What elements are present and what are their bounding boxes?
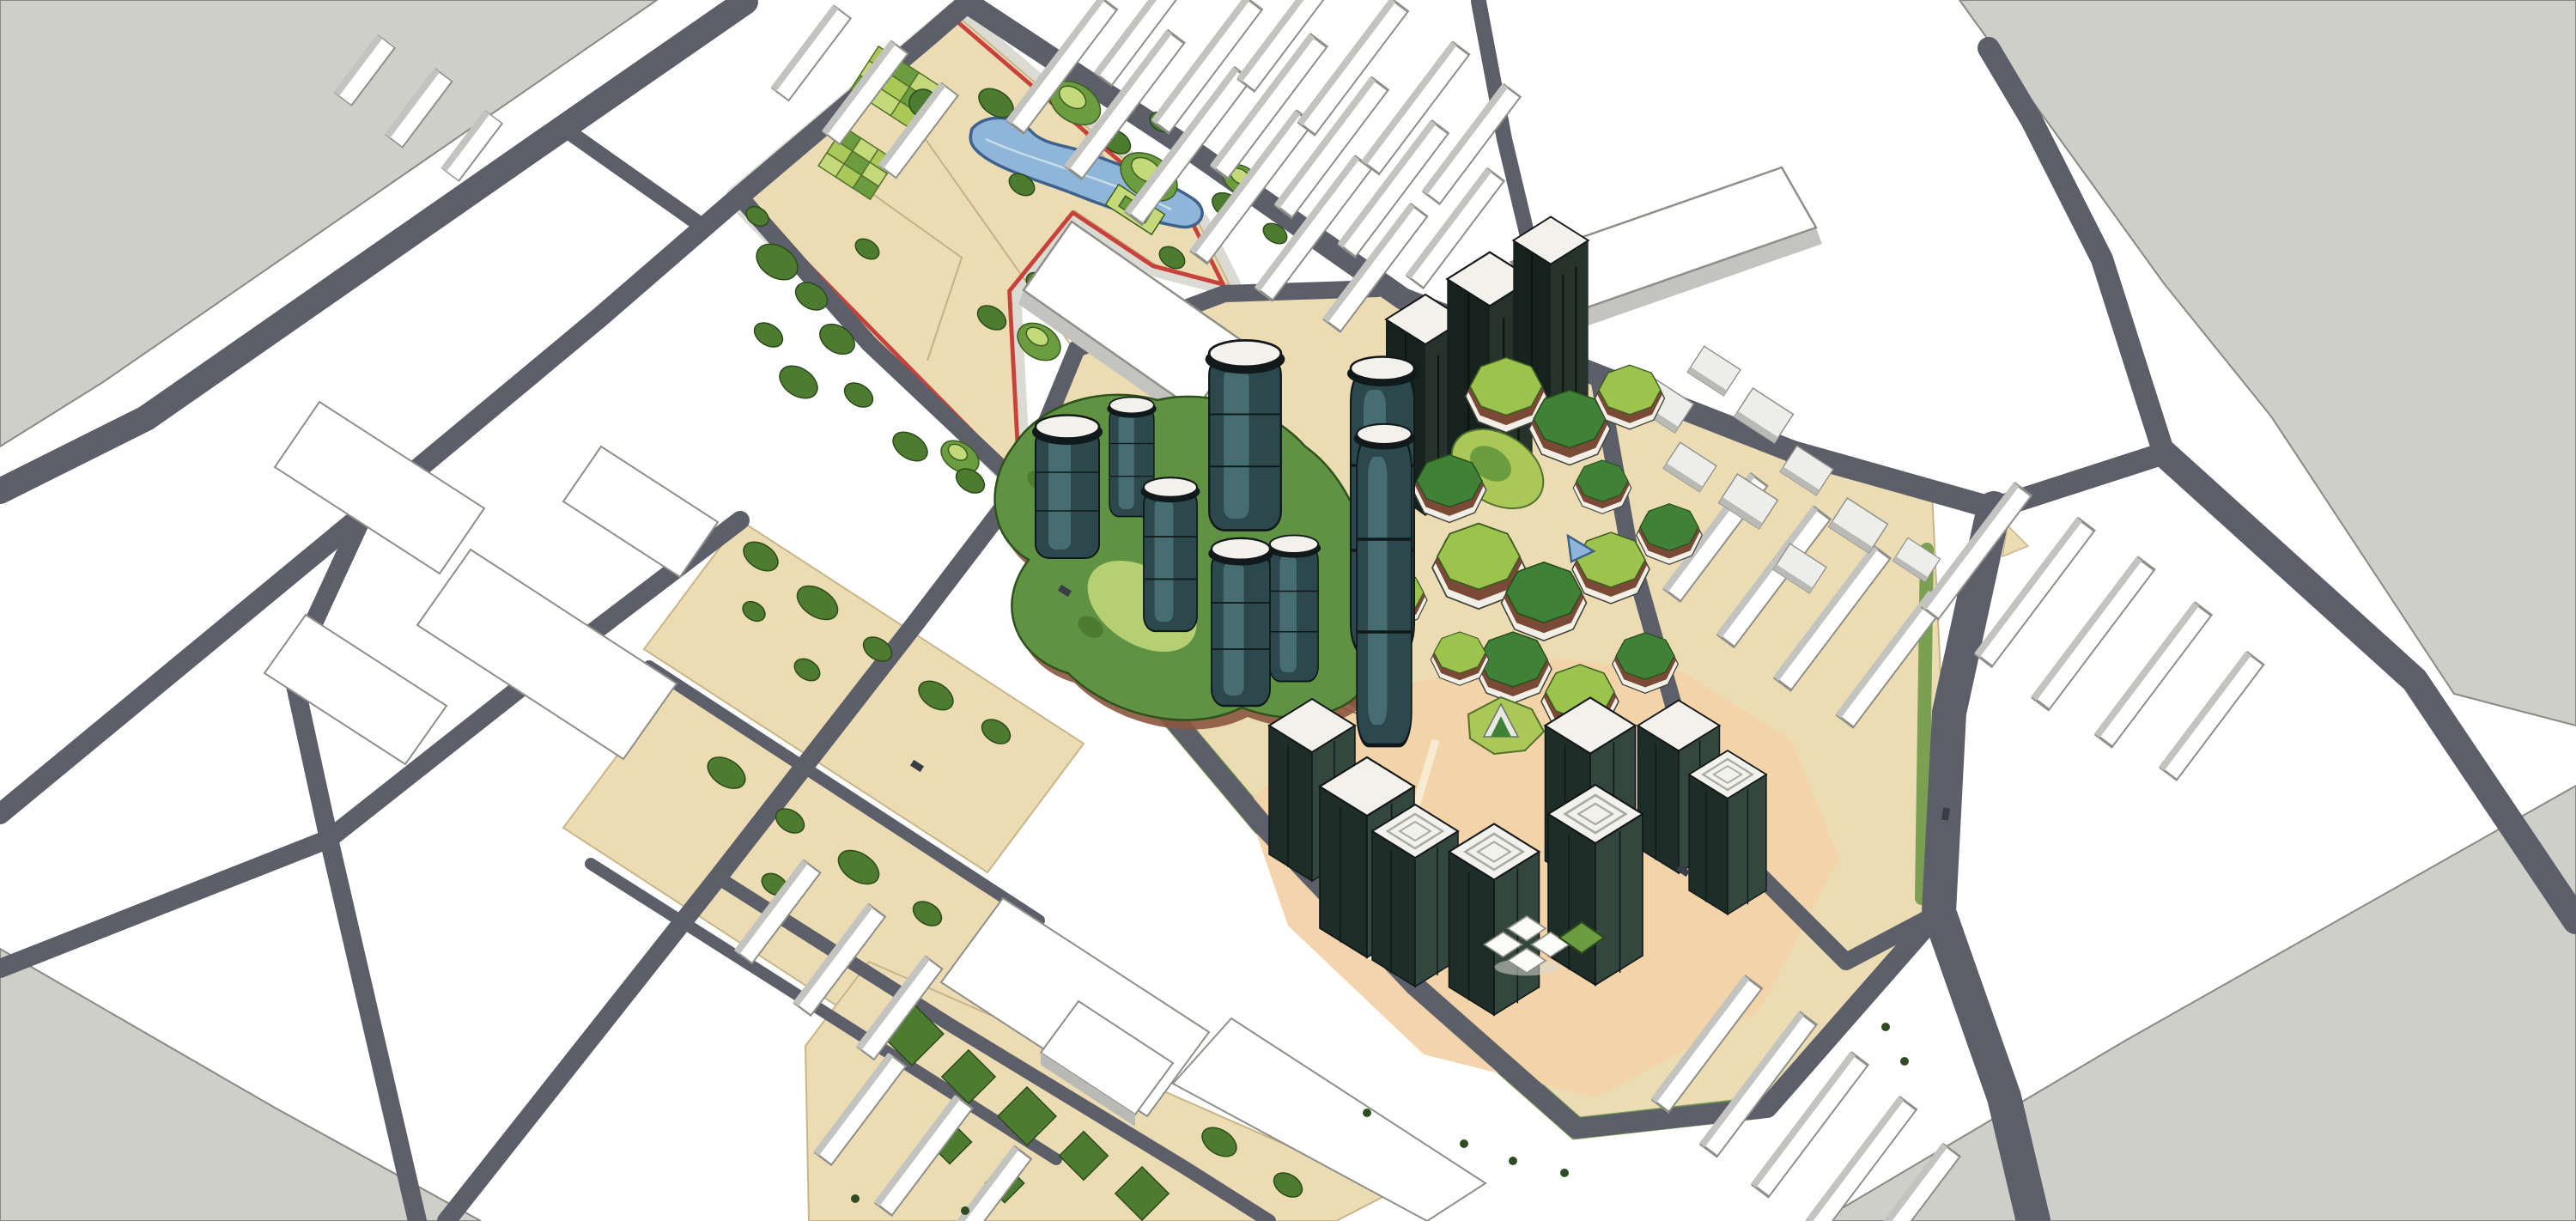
glass-tower bbox=[1206, 340, 1285, 530]
square-tower-stepped bbox=[1689, 750, 1766, 914]
glass-tower bbox=[1267, 535, 1321, 681]
glass-tower bbox=[1354, 424, 1415, 745]
glass-tower bbox=[1208, 538, 1273, 706]
square-tower-stepped bbox=[1548, 785, 1643, 985]
render-viewport bbox=[0, 0, 2576, 1221]
masterplan-render bbox=[0, 0, 2576, 1221]
glass-tower bbox=[1032, 416, 1103, 559]
glass-tower bbox=[1141, 477, 1200, 631]
square-tower-stepped bbox=[1372, 805, 1458, 987]
